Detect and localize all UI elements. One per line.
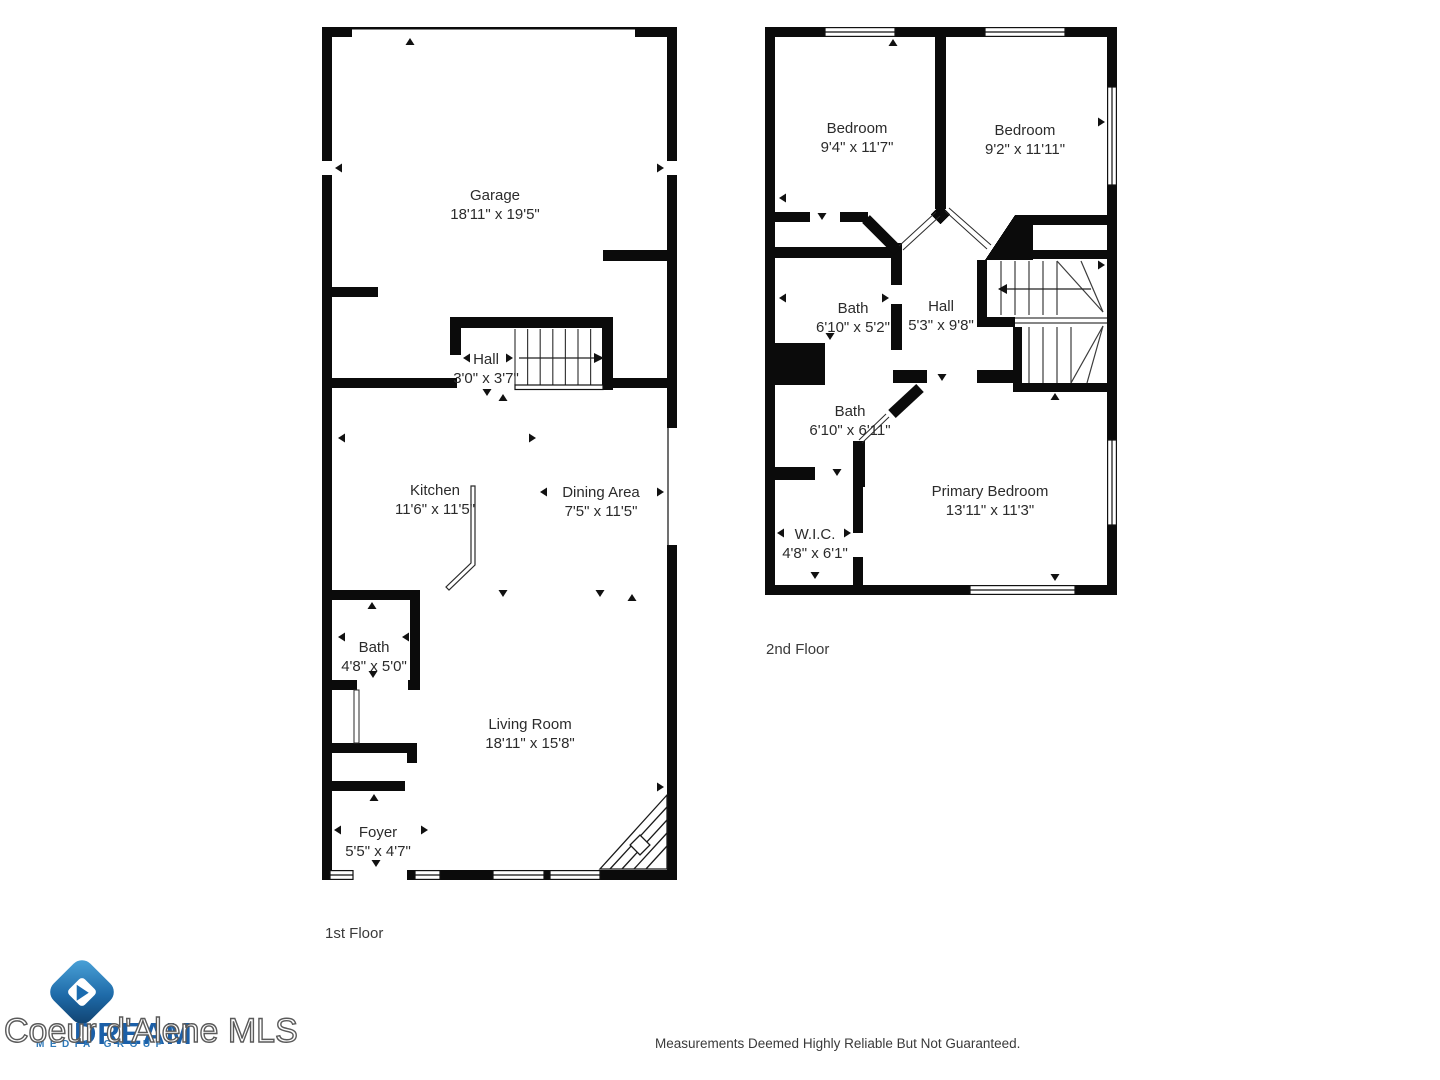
room-dims: 4'8" x 5'0" — [341, 658, 407, 677]
room-dims: 9'2" x 11'11" — [985, 141, 1065, 160]
room-dims: 6'10" x 5'2" — [816, 319, 890, 338]
room-label-bedroom-1: Bedroom 9'4" x 11'7" — [821, 120, 894, 157]
room-name: Kitchen — [395, 482, 475, 501]
room-name: Hall — [453, 351, 519, 370]
room-name: Bedroom — [985, 122, 1065, 141]
disclaimer-text: Measurements Deemed Highly Reliable But … — [655, 1036, 1020, 1051]
floor1-caption: 1st Floor — [325, 925, 383, 942]
room-label-primary-bedroom: Primary Bedroom 13'11" x 11'3" — [932, 483, 1049, 520]
room-name: Hall — [908, 298, 974, 317]
room-label-garage: Garage 18'11" x 19'5" — [450, 187, 540, 224]
room-label-bath-1f: Bath 4'8" x 5'0" — [341, 639, 407, 676]
room-label-living-room: Living Room 18'11" x 15'8" — [485, 716, 575, 753]
fireplace — [600, 795, 667, 869]
room-dims: 3'0" x 3'7" — [453, 370, 519, 389]
logo-inner-diamond — [66, 976, 97, 1007]
room-dims: 18'11" x 15'8" — [485, 735, 575, 754]
floor1-stairs — [515, 329, 604, 390]
room-dims: 4'8" x 6'1" — [782, 545, 848, 564]
bath-door-leaf — [354, 690, 359, 743]
room-dims: 5'3" x 9'8" — [908, 317, 974, 336]
room-name: Dining Area — [562, 484, 640, 503]
room-name: Bath — [341, 639, 407, 658]
room-label-dining-area: Dining Area 7'5" x 11'5" — [562, 484, 640, 521]
room-label-wic: W.I.C. 4'8" x 6'1" — [782, 526, 848, 563]
room-name: Garage — [450, 187, 540, 206]
room-dims: 9'4" x 11'7" — [821, 139, 894, 158]
room-name: Bedroom — [821, 120, 894, 139]
floor1-plan: Garage 18'11" x 19'5" Hall 3'0" x 3'7" K… — [322, 27, 677, 880]
room-name: Bath — [809, 403, 890, 422]
room-name: Primary Bedroom — [932, 483, 1049, 502]
stair-direction-arrow — [998, 284, 1007, 294]
room-dims: 11'6" x 11'5" — [395, 501, 475, 520]
room-label-foyer: Foyer 5'5" x 4'7" — [345, 824, 411, 861]
mls-watermark: Coeur d'Alene MLS — [4, 1012, 298, 1051]
room-label-hall-1f: Hall 3'0" x 3'7" — [453, 351, 519, 388]
room-name: Living Room — [485, 716, 575, 735]
room-name: Bath — [816, 300, 890, 319]
room-label-hall-2f: Hall 5'3" x 9'8" — [908, 298, 974, 335]
play-icon — [77, 985, 89, 1001]
floorplan-page: Garage 18'11" x 19'5" Hall 3'0" x 3'7" K… — [0, 0, 1440, 1080]
room-label-bath-2f-lower: Bath 6'10" x 6'11" — [809, 403, 890, 440]
room-dims: 18'11" x 19'5" — [450, 206, 540, 225]
room-label-kitchen: Kitchen 11'6" x 11'5" — [395, 482, 475, 519]
room-name: W.I.C. — [782, 526, 848, 545]
room-dims: 13'11" x 11'3" — [932, 502, 1049, 521]
room-dims: 7'5" x 11'5" — [562, 503, 640, 522]
floor2-plan: Bedroom 9'4" x 11'7" Bedroom 9'2" x 11'1… — [765, 27, 1117, 595]
floor2-caption: 2nd Floor — [766, 641, 829, 658]
room-name: Foyer — [345, 824, 411, 843]
room-label-bath-2f-upper: Bath 6'10" x 5'2" — [816, 300, 890, 337]
room-label-bedroom-2: Bedroom 9'2" x 11'11" — [985, 122, 1065, 159]
room-dims: 6'10" x 6'11" — [809, 422, 890, 441]
room-dims: 5'5" x 4'7" — [345, 843, 411, 862]
